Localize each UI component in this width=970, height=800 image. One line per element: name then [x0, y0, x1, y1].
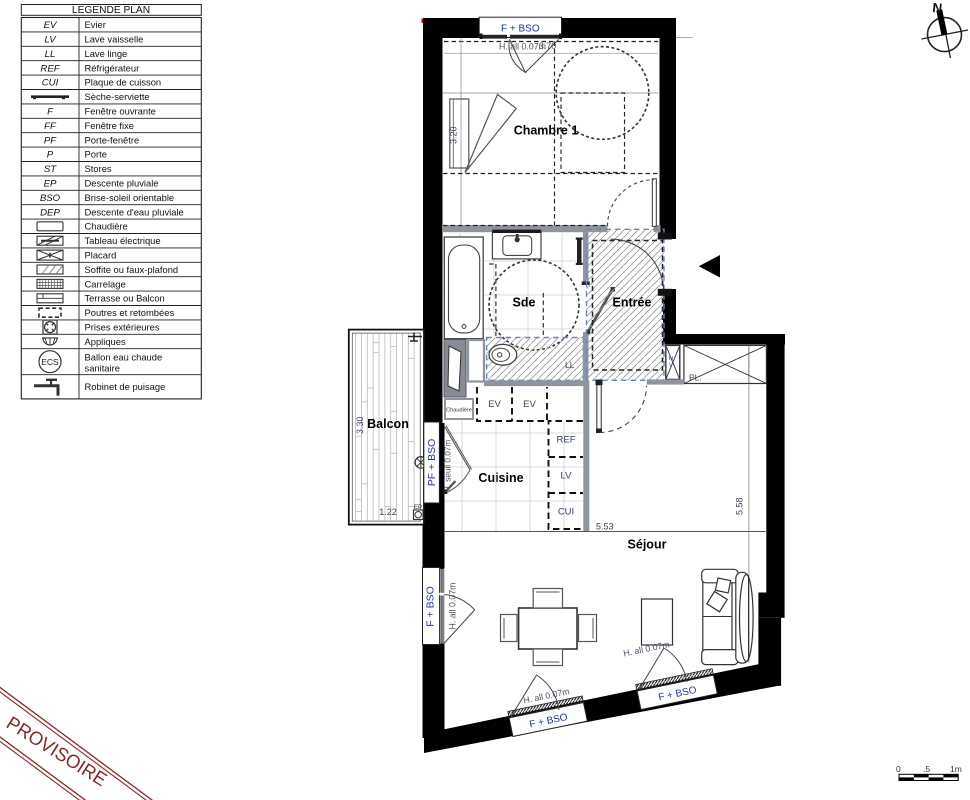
svg-text:Porte-fenêtre: Porte-fenêtre [85, 134, 140, 145]
svg-text:3.30: 3.30 [355, 416, 365, 434]
svg-text:Entrée: Entrée [613, 296, 652, 310]
svg-text:ECS: ECS [41, 357, 59, 367]
svg-text:F + BSO: F + BSO [501, 24, 540, 35]
svg-text:Réfrigérateur: Réfrigérateur [85, 62, 140, 73]
svg-text:Lave linge: Lave linge [85, 48, 128, 59]
svg-text:LEGENDE PLAN: LEGENDE PLAN [72, 5, 150, 16]
svg-text:.5: .5 [923, 764, 930, 774]
svg-text:Balcon: Balcon [367, 417, 409, 431]
svg-text:Plaque de cuisson: Plaque de cuisson [85, 77, 162, 88]
svg-text:1.22: 1.22 [379, 507, 397, 517]
svg-text:Carrelage: Carrelage [85, 278, 126, 289]
svg-text:0: 0 [896, 764, 901, 774]
svg-text:BSO: BSO [40, 193, 61, 204]
svg-text:sanitaire: sanitaire [85, 362, 120, 373]
svg-text:Appliques: Appliques [85, 336, 126, 347]
svg-text:F + BSO: F + BSO [425, 586, 437, 627]
svg-text:LL: LL [45, 49, 56, 60]
svg-text:FF: FF [44, 121, 57, 132]
svg-text:H. seuil 0.07m: H. seuil 0.07m [444, 440, 453, 493]
svg-text:LV: LV [561, 471, 573, 482]
svg-text:P: P [47, 150, 54, 161]
svg-text:EV: EV [44, 20, 58, 31]
svg-text:EP: EP [44, 179, 57, 190]
svg-text:Ballon eau chaude: Ballon eau chaude [85, 352, 163, 363]
svg-text:5.58: 5.58 [735, 497, 745, 515]
svg-text:Poutres et retombées: Poutres et retombées [85, 307, 175, 318]
svg-text:Sèche-serviette: Sèche-serviette [85, 91, 150, 102]
svg-text:V: V [669, 363, 673, 369]
svg-text:PF: PF [44, 135, 57, 146]
svg-text:Robinet de puisage: Robinet de puisage [85, 381, 166, 392]
svg-text:Descente d'eau pluviale: Descente d'eau pluviale [85, 206, 184, 217]
svg-text:Prises extérieures: Prises extérieures [85, 322, 160, 333]
svg-text:Chaudière: Chaudière [446, 408, 472, 414]
svg-text:CUI: CUI [558, 507, 574, 518]
svg-text:H. all 0.07m: H. all 0.07m [448, 583, 458, 630]
svg-text:Porte: Porte [85, 149, 107, 160]
svg-text:PL.: PL. [689, 373, 702, 383]
svg-text:Descente pluviale: Descente pluviale [85, 178, 159, 189]
svg-text:LL: LL [565, 360, 575, 370]
svg-text:Fenêtre fixe: Fenêtre fixe [85, 120, 135, 131]
svg-text:H: H [669, 356, 673, 362]
svg-text:3.70: 3.70 [539, 41, 556, 51]
svg-text:REF: REF [557, 435, 576, 446]
svg-text:1m: 1m [950, 764, 962, 774]
svg-text:Soffite ou faux-plafond: Soffite ou faux-plafond [85, 264, 179, 275]
svg-text:Evier: Evier [85, 19, 106, 30]
svg-text:Tableau électrique: Tableau électrique [85, 235, 161, 246]
svg-text:Chaudière: Chaudière [85, 221, 128, 232]
svg-text:Lave vaisselle: Lave vaisselle [85, 34, 144, 45]
svg-text:REF: REF [40, 63, 60, 74]
svg-text:Séjour: Séjour [628, 538, 667, 552]
svg-text:Sde: Sde [513, 296, 536, 310]
svg-text:Cuisine: Cuisine [478, 471, 523, 485]
svg-text:5.53: 5.53 [596, 522, 614, 532]
svg-text:LV: LV [44, 35, 57, 46]
svg-text:Brise-soleil orientable: Brise-soleil orientable [85, 192, 175, 203]
svg-text:EV: EV [488, 399, 501, 410]
svg-text:DEP: DEP [40, 207, 60, 218]
svg-text:EV: EV [523, 399, 536, 410]
svg-text:ST: ST [44, 164, 57, 175]
svg-text:Stores: Stores [85, 163, 112, 174]
svg-text:Fenêtre ouvrante: Fenêtre ouvrante [85, 106, 156, 117]
svg-text:Terrasse ou Balcon: Terrasse ou Balcon [85, 293, 165, 304]
svg-text:N: N [932, 0, 943, 16]
svg-text:PF + BSO: PF + BSO [426, 439, 438, 487]
svg-text:Placard: Placard [85, 250, 117, 261]
svg-text:PROVISOIRE: PROVISOIRE [2, 713, 110, 791]
svg-text:CUI: CUI [42, 78, 59, 89]
